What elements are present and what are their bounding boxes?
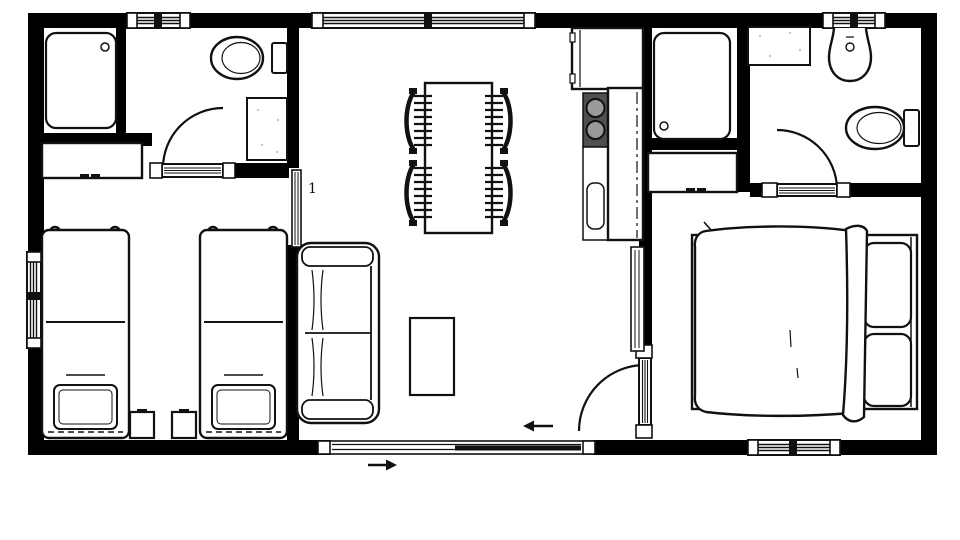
cooktop-icon — [583, 93, 608, 147]
single-bed-2-icon — [200, 227, 287, 438]
wall-segment — [593, 440, 748, 455]
dining-table-icon — [425, 83, 492, 233]
wardrobe-right-icon — [648, 153, 737, 192]
wall-segment — [190, 13, 312, 28]
room-number-label: 1 — [308, 181, 317, 197]
wall-segment — [28, 440, 330, 455]
wall-segment — [921, 13, 937, 455]
wall-segment — [840, 440, 937, 455]
wardrobe-left-icon — [42, 143, 142, 178]
wall-segment — [233, 163, 289, 178]
fridge-icon — [570, 28, 643, 89]
single-bed-1-icon — [42, 227, 129, 438]
nightstand-1-icon — [130, 409, 154, 438]
shower-right-icon — [654, 33, 730, 139]
vanity-right-icon — [748, 27, 810, 65]
window-living — [312, 13, 535, 28]
burner-icon — [587, 99, 605, 117]
sliding-door — [318, 441, 595, 454]
wall-segment — [116, 28, 126, 133]
window-bathroom-right — [823, 13, 885, 28]
shower-left-icon — [46, 33, 116, 128]
coffee-table-icon — [410, 318, 454, 395]
vanity-left-icon — [247, 98, 287, 160]
floor-plan-canvas: 1 — [0, 0, 960, 540]
burner-icon — [587, 121, 605, 139]
window-bathroom-left — [127, 13, 190, 28]
window-bedroom-left — [27, 252, 41, 348]
kitchen-sink-icon — [587, 183, 604, 229]
nightstand-2-icon — [172, 409, 196, 438]
window-bedroom-right — [748, 440, 840, 455]
slider-panel-bedroom-left — [292, 170, 301, 247]
slider-panel-bedroom-right — [631, 247, 644, 351]
toilet-right-icon — [846, 107, 919, 149]
wall-segment — [850, 183, 921, 197]
wash-basin-icon — [829, 28, 871, 81]
wall-segment — [28, 13, 44, 252]
wall-segment — [535, 13, 823, 28]
double-bed-icon — [692, 222, 917, 421]
wall-segment — [287, 28, 299, 168]
wall-segment — [750, 183, 762, 197]
toilet-left-icon — [211, 37, 287, 79]
sofa-icon — [297, 243, 379, 423]
